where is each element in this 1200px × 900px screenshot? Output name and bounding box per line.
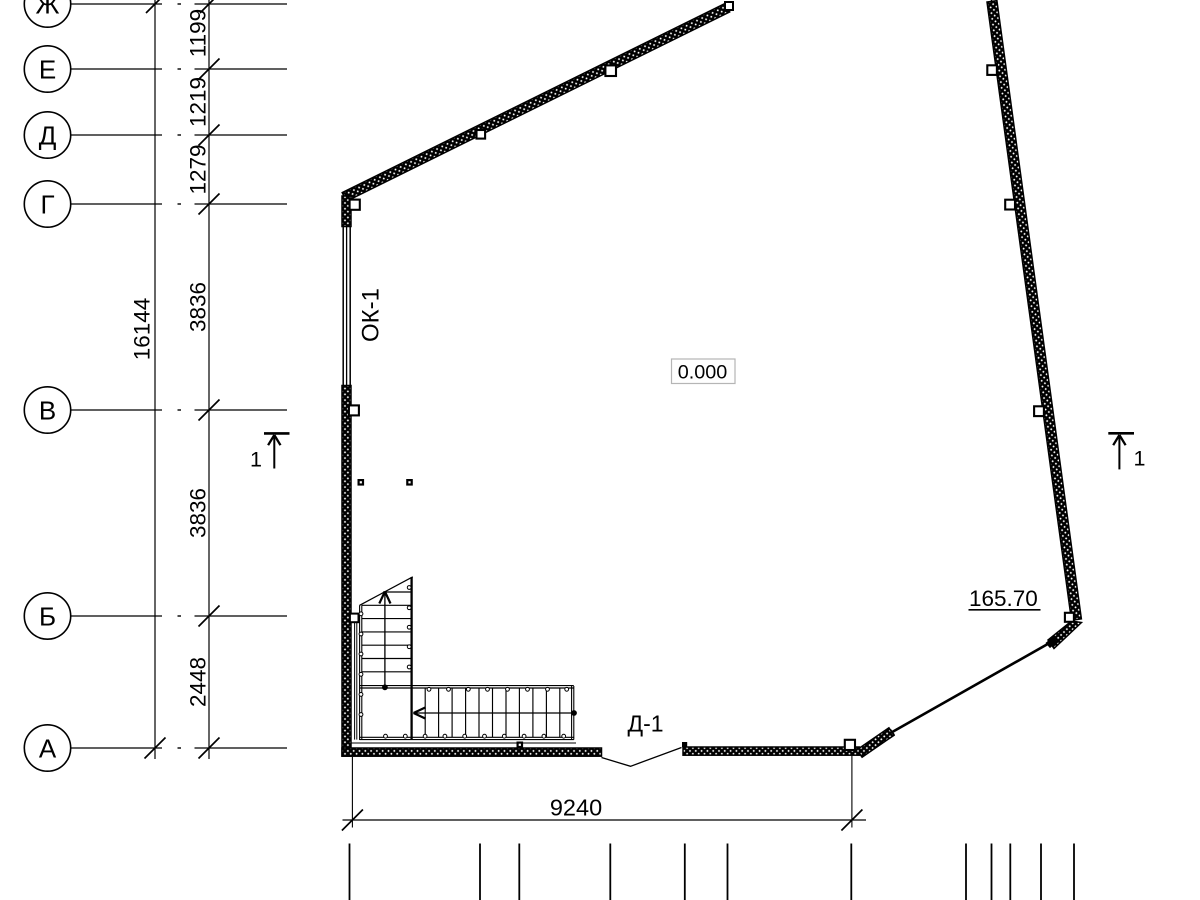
svg-text:ОК-1: ОК-1 bbox=[358, 288, 385, 342]
svg-text:2448: 2448 bbox=[186, 657, 211, 707]
svg-text:А: А bbox=[39, 733, 57, 763]
svg-text:1279: 1279 bbox=[186, 144, 211, 194]
svg-text:9240: 9240 bbox=[550, 795, 602, 821]
svg-text:1219: 1219 bbox=[186, 77, 211, 127]
svg-text:0.000: 0.000 bbox=[678, 361, 728, 383]
svg-text:3836: 3836 bbox=[186, 488, 211, 538]
svg-text:Б: Б bbox=[39, 601, 56, 631]
svg-text:165.70: 165.70 bbox=[969, 586, 1038, 611]
svg-text:1: 1 bbox=[1134, 447, 1146, 471]
svg-text:1: 1 bbox=[250, 448, 262, 472]
svg-text:Д-1: Д-1 bbox=[628, 711, 664, 737]
svg-text:Г: Г bbox=[40, 189, 54, 219]
svg-text:В: В bbox=[39, 395, 56, 425]
svg-text:Е: Е bbox=[39, 54, 56, 84]
svg-text:3836: 3836 bbox=[186, 282, 211, 332]
svg-text:16144: 16144 bbox=[130, 298, 155, 361]
svg-text:Ж: Ж bbox=[35, 0, 59, 19]
svg-text:1199: 1199 bbox=[186, 9, 211, 57]
svg-text:Д: Д bbox=[39, 120, 57, 150]
